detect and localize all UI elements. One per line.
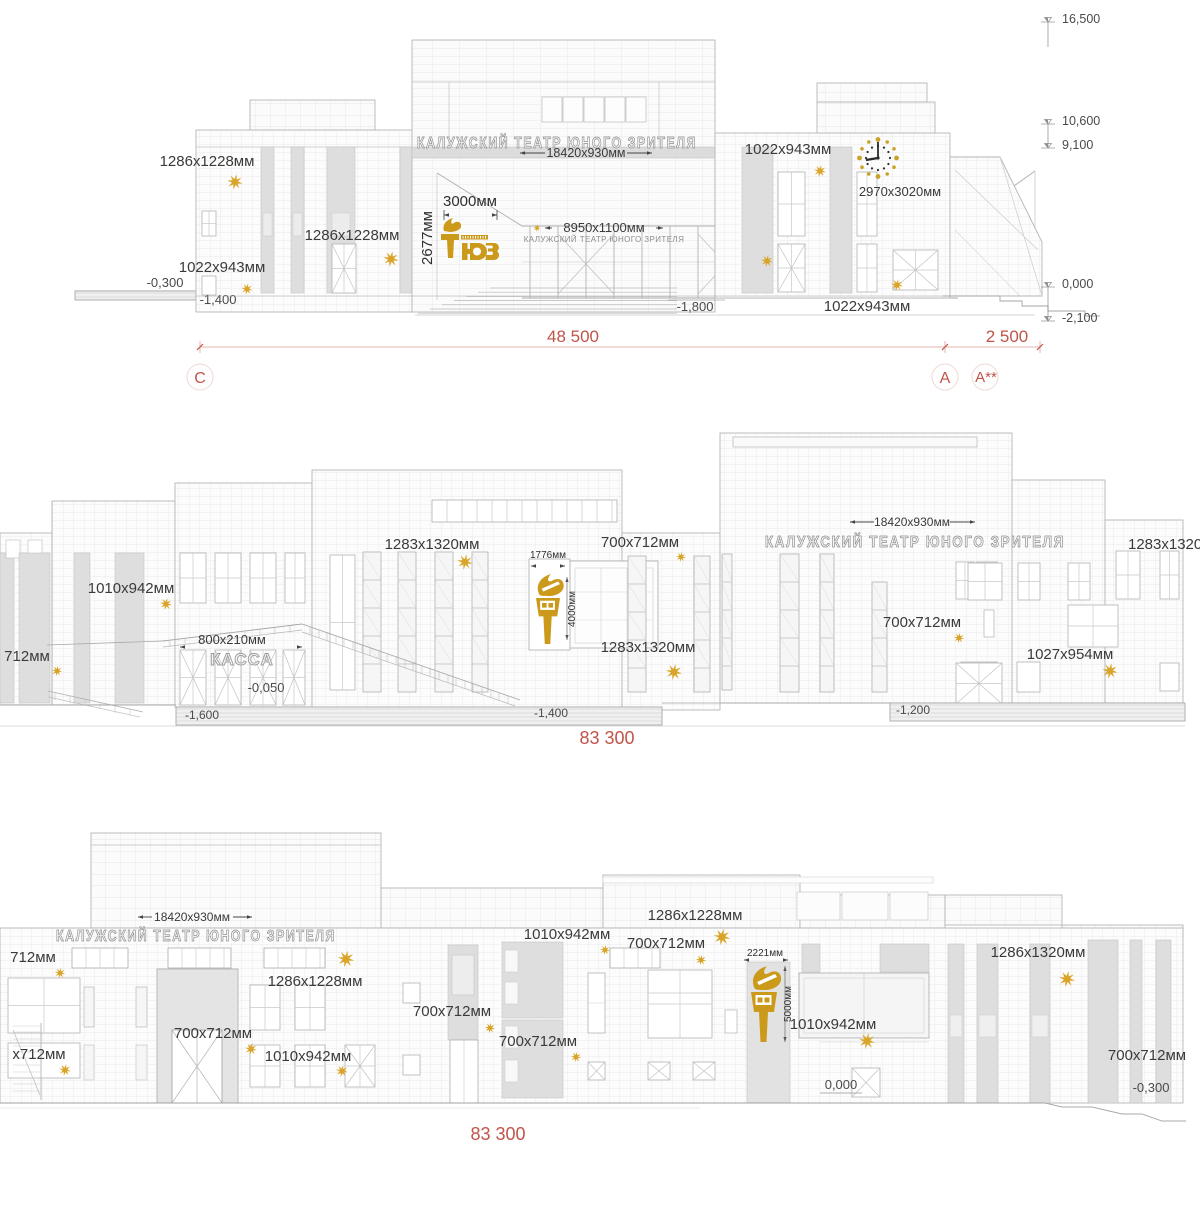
svg-text:1283x1320мм: 1283x1320мм bbox=[601, 639, 696, 656]
svg-text:16,500: 16,500 bbox=[1062, 12, 1100, 26]
svg-text:КАЛУЖСКИЙ ТЕАТР ЮНОГО ЗРИТЕЛЯ: КАЛУЖСКИЙ ТЕАТР ЮНОГО ЗРИТЕЛЯ bbox=[765, 533, 1065, 551]
svg-text:1286x1320мм: 1286x1320мм bbox=[991, 944, 1086, 961]
svg-text:КАЛУЖСКИЙ ТЕАТР ЮНОГО ЗРИТЕЛЯ: КАЛУЖСКИЙ ТЕАТР ЮНОГО ЗРИТЕЛЯ bbox=[524, 235, 685, 244]
svg-text:10,600: 10,600 bbox=[1062, 114, 1100, 128]
svg-text:-0,300: -0,300 bbox=[1133, 1080, 1170, 1095]
svg-text:0,000: 0,000 bbox=[1062, 277, 1093, 291]
svg-text:700x712мм: 700x712мм bbox=[174, 1025, 252, 1042]
svg-text:1286x1228мм: 1286x1228мм bbox=[648, 907, 743, 924]
svg-text:2221мм: 2221мм bbox=[747, 948, 783, 959]
svg-text:1010x942мм: 1010x942мм bbox=[265, 1048, 352, 1065]
svg-text:1286x1228мм: 1286x1228мм bbox=[160, 153, 255, 170]
svg-text:А**: А** bbox=[975, 369, 997, 386]
svg-text:700x712мм: 700x712мм bbox=[1108, 1047, 1186, 1064]
svg-text:1776мм: 1776мм bbox=[530, 550, 566, 561]
svg-text:1283x1320мм: 1283x1320мм bbox=[385, 536, 480, 553]
svg-text:712мм: 712мм bbox=[4, 648, 50, 665]
svg-text:8950x1100мм: 8950x1100мм bbox=[563, 220, 644, 235]
svg-text:1010x942мм: 1010x942мм bbox=[790, 1016, 877, 1033]
svg-text:1010x942мм: 1010x942мм bbox=[524, 926, 611, 943]
svg-text:83 300: 83 300 bbox=[579, 728, 634, 748]
svg-text:18420x930мм: 18420x930мм bbox=[154, 910, 230, 924]
svg-text:9,100: 9,100 bbox=[1062, 138, 1093, 152]
svg-text:4000мм: 4000мм bbox=[567, 591, 578, 627]
svg-text:712мм: 712мм bbox=[10, 949, 56, 966]
svg-text:x712мм: x712мм bbox=[12, 1046, 65, 1063]
svg-text:83 300: 83 300 bbox=[470, 1124, 525, 1144]
svg-text:700x712мм: 700x712мм bbox=[499, 1033, 577, 1050]
svg-text:1286x1228мм: 1286x1228мм bbox=[268, 973, 363, 990]
svg-text:700x712мм: 700x712мм bbox=[627, 935, 705, 952]
svg-text:1022x943мм: 1022x943мм bbox=[745, 141, 832, 158]
svg-text:1283x1320мм: 1283x1320мм bbox=[1128, 536, 1200, 553]
svg-text:700x712мм: 700x712мм bbox=[601, 534, 679, 551]
svg-text:КАССА: КАССА bbox=[210, 650, 274, 669]
svg-text:1010x942мм: 1010x942мм bbox=[88, 580, 175, 597]
svg-text:С: С bbox=[194, 370, 206, 387]
svg-text:-1,200: -1,200 bbox=[896, 703, 930, 717]
svg-text:700x712мм: 700x712мм bbox=[883, 614, 961, 631]
svg-text:48 500: 48 500 bbox=[547, 327, 599, 346]
svg-text:-1,600: -1,600 bbox=[185, 708, 219, 722]
svg-text:18420x930мм: 18420x930мм bbox=[546, 146, 625, 160]
svg-text:1022x943мм: 1022x943мм bbox=[179, 259, 266, 276]
svg-text:2677мм: 2677мм bbox=[419, 211, 436, 265]
svg-text:0,000: 0,000 bbox=[825, 1077, 858, 1092]
svg-text:-1,800: -1,800 bbox=[677, 299, 714, 314]
svg-text:-0,300: -0,300 bbox=[147, 275, 184, 290]
svg-text:800x210мм: 800x210мм bbox=[198, 632, 266, 647]
svg-text:2 500: 2 500 bbox=[986, 327, 1029, 346]
svg-text:18420x930мм: 18420x930мм bbox=[874, 515, 950, 529]
svg-text:1286x1228мм: 1286x1228мм bbox=[305, 227, 400, 244]
svg-text:-2,100: -2,100 bbox=[1062, 311, 1097, 325]
svg-text:А: А bbox=[940, 370, 951, 387]
svg-text:-0,050: -0,050 bbox=[248, 680, 285, 695]
svg-text:3000мм: 3000мм bbox=[443, 193, 497, 210]
svg-text:-1,400: -1,400 bbox=[200, 292, 237, 307]
svg-text:700x712мм: 700x712мм bbox=[413, 1003, 491, 1020]
svg-text:2970x3020мм: 2970x3020мм bbox=[859, 184, 941, 199]
svg-text:КАЛУЖСКИЙ ТЕАТР ЮНОГО ЗРИТЕЛЯ: КАЛУЖСКИЙ ТЕАТР ЮНОГО ЗРИТЕЛЯ bbox=[56, 927, 336, 945]
svg-text:1027x954мм: 1027x954мм bbox=[1027, 646, 1114, 663]
svg-text:1022x943мм: 1022x943мм bbox=[824, 298, 911, 315]
svg-text:-1,400: -1,400 bbox=[534, 706, 568, 720]
